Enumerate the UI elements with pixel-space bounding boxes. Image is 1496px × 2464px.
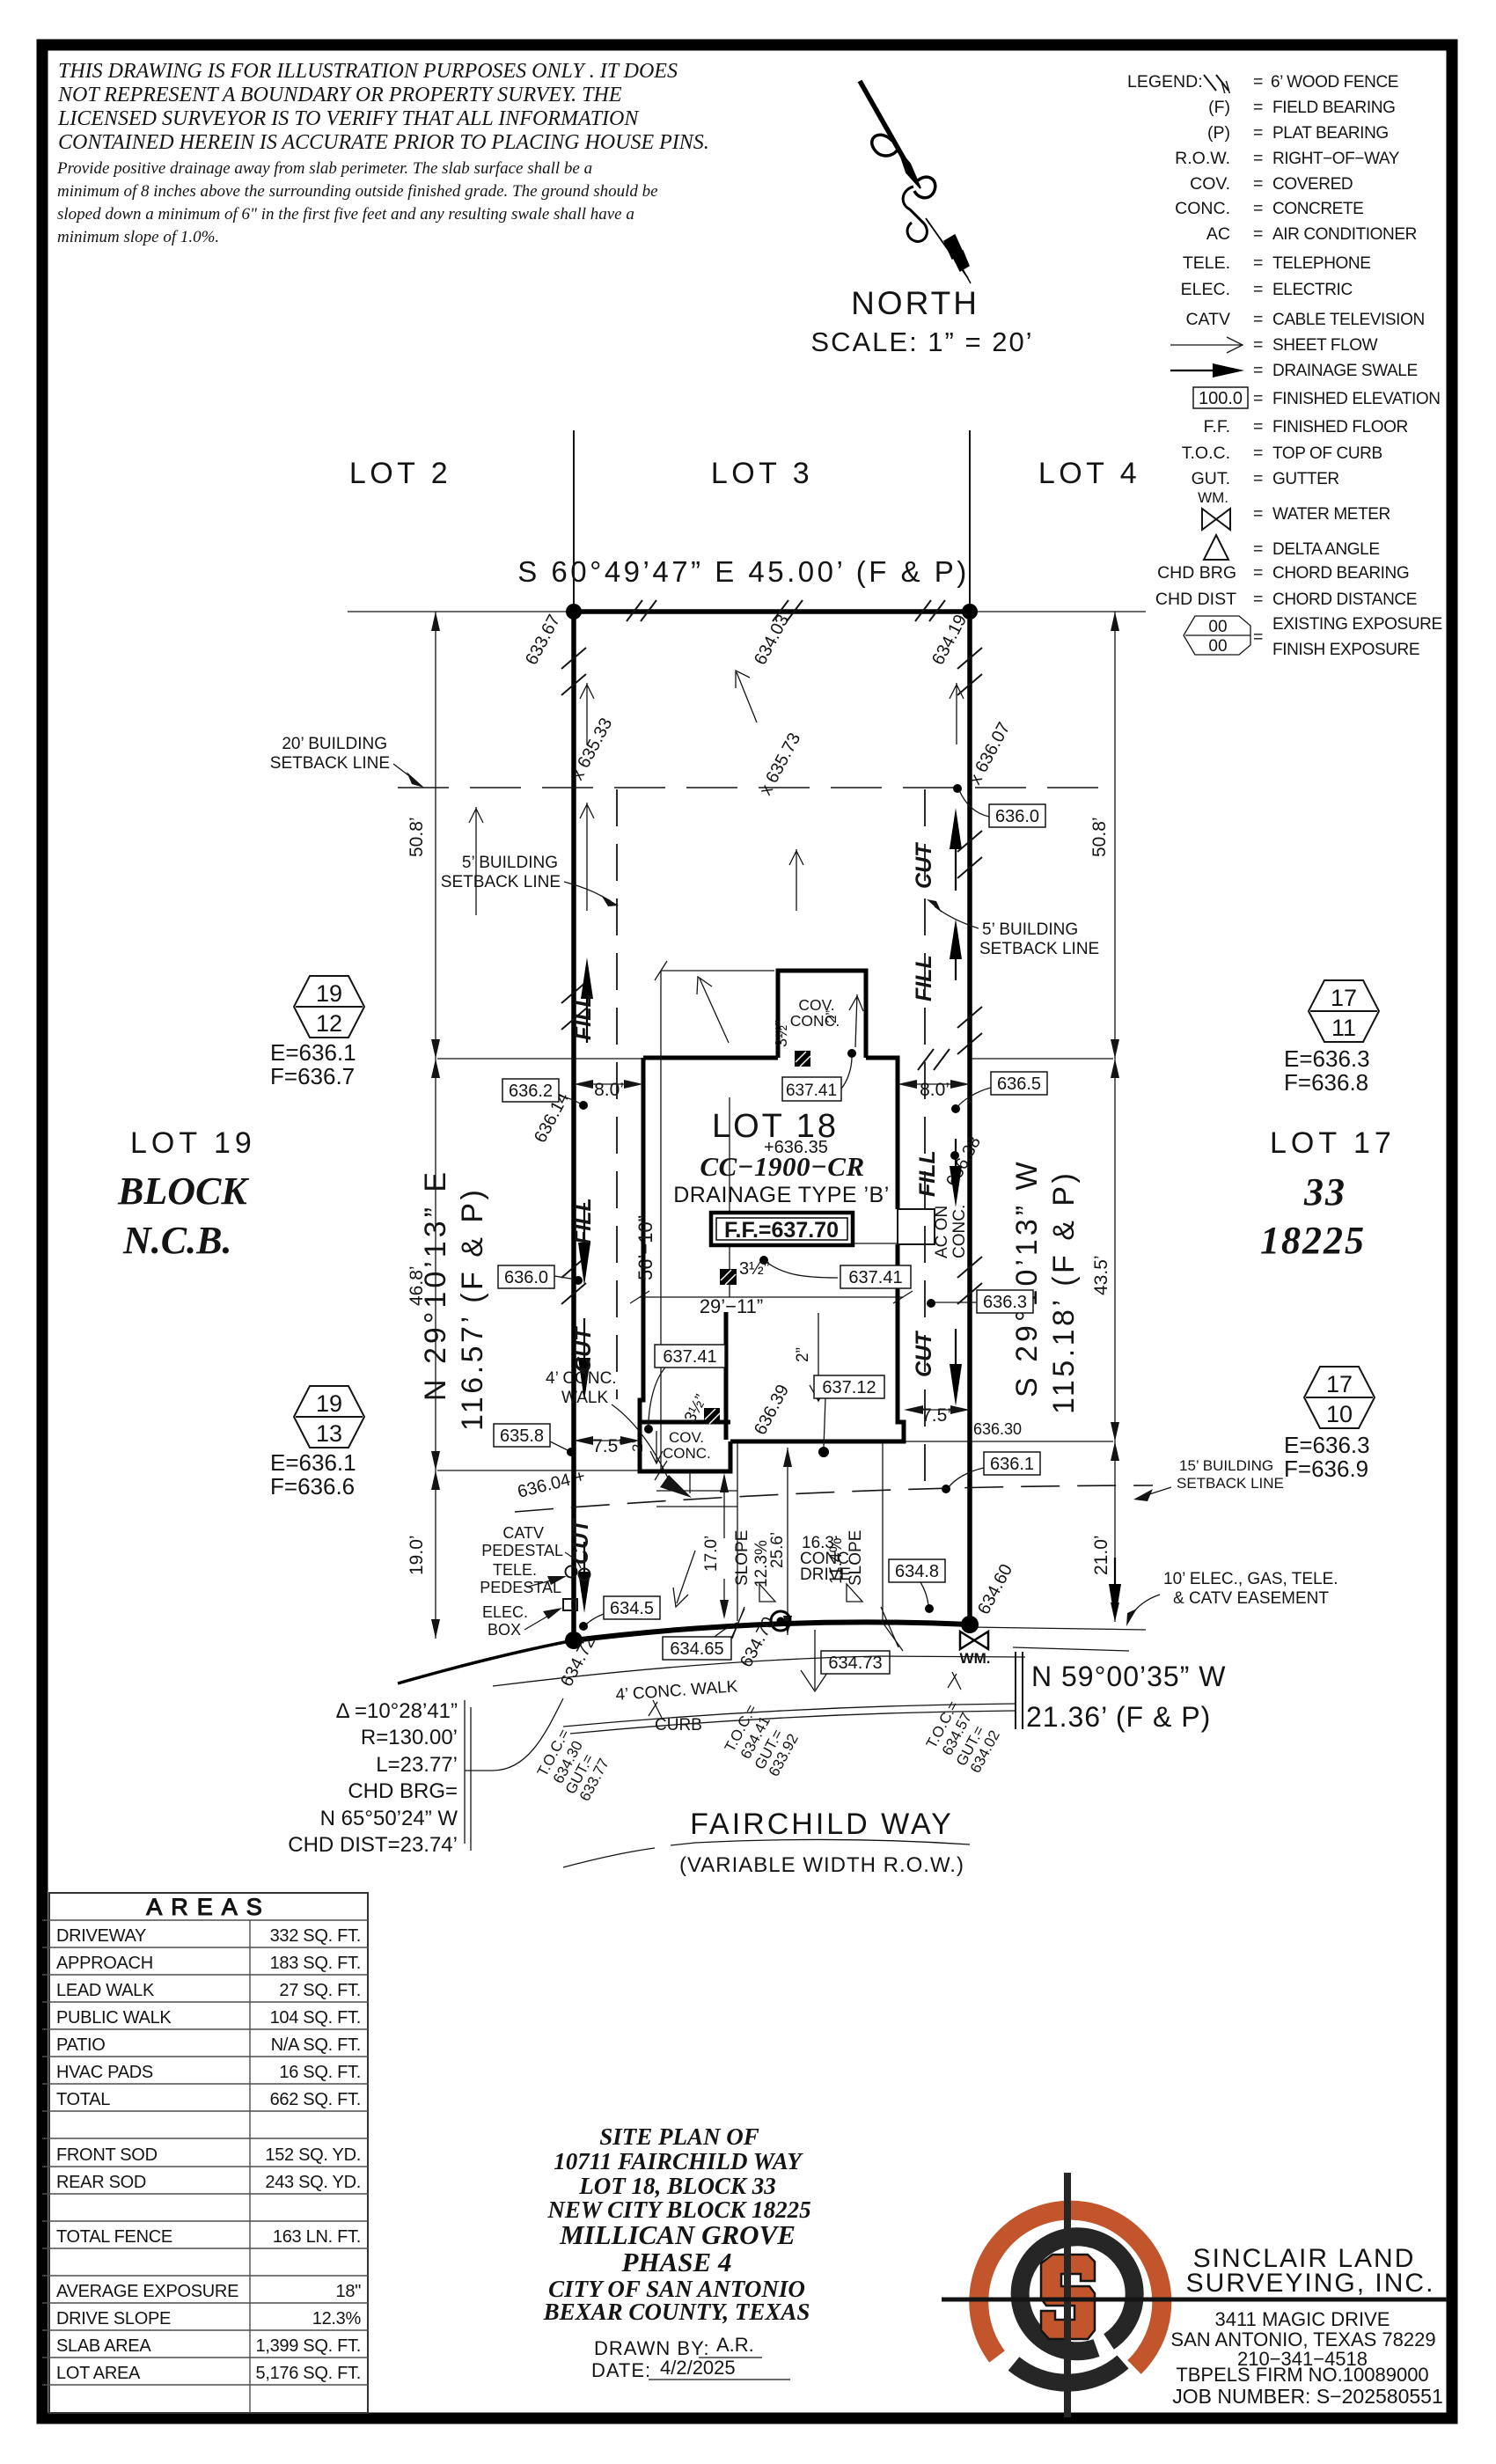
- svg-text:FRONT SOD: FRONT SOD: [56, 2145, 158, 2165]
- svg-text:637.41: 637.41: [848, 1268, 902, 1287]
- svg-text:56’−10”: 56’−10”: [634, 1215, 656, 1280]
- svg-text:SHEET FLOW: SHEET FLOW: [1272, 336, 1378, 355]
- svg-text:N 59°00’35” W: N 59°00’35” W: [1031, 1661, 1226, 1692]
- svg-text:50.8’: 50.8’: [1089, 817, 1110, 857]
- svg-text:104 SQ. FT.: 104 SQ. FT.: [270, 2008, 361, 2028]
- svg-text:GUTTER: GUTTER: [1272, 470, 1339, 488]
- svg-text:CATV: CATV: [502, 1524, 544, 1542]
- svg-text:FINISHED ELEVATION: FINISHED ELEVATION: [1272, 390, 1441, 408]
- svg-text:CHORD BEARING: CHORD BEARING: [1272, 564, 1409, 583]
- svg-text:10711 FAIRCHILD WAY: 10711 FAIRCHILD WAY: [554, 2148, 803, 2174]
- svg-text:SETBACK LINE: SETBACK LINE: [441, 873, 561, 891]
- svg-text:FILL: FILL: [571, 994, 596, 1040]
- svg-text:AIR CONDITIONER: AIR CONDITIONER: [1272, 225, 1417, 244]
- svg-text:AREAS: AREAS: [146, 1894, 271, 1920]
- svg-text:637.41: 637.41: [786, 1082, 837, 1100]
- svg-text:PATIO: PATIO: [56, 2035, 106, 2055]
- svg-text:635.8: 635.8: [500, 1426, 544, 1446]
- svg-text:4’ CONC.: 4’ CONC.: [546, 1369, 617, 1388]
- svg-text:R=130.00’: R=130.00’: [361, 1726, 458, 1749]
- svg-text:E=636.3: E=636.3: [1284, 1045, 1370, 1072]
- svg-text:637.41: 637.41: [663, 1347, 716, 1367]
- svg-text:AVERAGE EXPOSURE: AVERAGE EXPOSURE: [56, 2282, 238, 2301]
- svg-text:FINISHED FLOOR: FINISHED FLOOR: [1272, 418, 1408, 436]
- svg-text:L=23.77’: L=23.77’: [376, 1753, 458, 1777]
- svg-text:DELTA ANGLE: DELTA ANGLE: [1272, 540, 1380, 559]
- svg-text:(VARIABLE WIDTH R.O.W.): (VARIABLE WIDTH R.O.W.): [679, 1853, 964, 1877]
- svg-text:=: =: [1253, 280, 1263, 299]
- svg-text:=: =: [1253, 469, 1263, 488]
- svg-text:636.2: 636.2: [509, 1082, 553, 1101]
- svg-text:243 SQ. YD.: 243 SQ. YD.: [265, 2173, 361, 2192]
- svg-text:REAR SOD: REAR SOD: [56, 2173, 146, 2192]
- svg-text:PLAT BEARING: PLAT BEARING: [1272, 124, 1389, 143]
- svg-text:(F): (F): [1208, 98, 1230, 117]
- svg-text:636.3: 636.3: [983, 1293, 1027, 1312]
- svg-text:SITE PLAN OF: SITE PLAN OF: [599, 2123, 759, 2150]
- svg-text:=: =: [1253, 590, 1263, 609]
- svg-text:E=636.1: E=636.1: [270, 1039, 356, 1066]
- svg-text:R.O.W.: R.O.W.: [1175, 149, 1230, 168]
- svg-text:=: =: [1253, 199, 1263, 218]
- svg-text:N/A SQ. FT.: N/A SQ. FT.: [271, 2035, 361, 2055]
- svg-text:=: =: [1253, 504, 1263, 524]
- svg-text:SURVEYING, INC.: SURVEYING, INC.: [1186, 2269, 1435, 2298]
- svg-text:=: =: [1253, 361, 1263, 380]
- svg-text:21.0’: 21.0’: [1091, 1535, 1111, 1575]
- svg-text:CABLE TELEVISION: CABLE TELEVISION: [1272, 311, 1425, 329]
- svg-text:LEAD WALK: LEAD WALK: [56, 1981, 155, 2000]
- svg-text:LEGEND:: LEGEND:: [1127, 72, 1203, 92]
- svg-text:634.8: 634.8: [895, 1562, 939, 1581]
- svg-text:DATE:: DATE:: [591, 2359, 651, 2381]
- svg-text:SETBACK LINE: SETBACK LINE: [270, 754, 390, 773]
- svg-text:minimum slope of 1.0%.: minimum slope of 1.0%.: [57, 228, 219, 246]
- svg-text:TBPELS FIRM NO.10089000: TBPELS FIRM NO.10089000: [1176, 2364, 1428, 2386]
- svg-text:& CATV EASEMENT: & CATV EASEMENT: [1173, 1589, 1329, 1608]
- svg-text:12: 12: [316, 1010, 342, 1037]
- svg-text:=: =: [1253, 224, 1263, 244]
- svg-text:634.5: 634.5: [610, 1599, 654, 1618]
- svg-text:11: 11: [1331, 1015, 1356, 1041]
- svg-text:18225: 18225: [1260, 1219, 1366, 1262]
- svg-text:7.5’: 7.5’: [921, 1405, 951, 1426]
- svg-text:636.5: 636.5: [997, 1074, 1041, 1094]
- svg-text:sloped down a minimum of 6" in: sloped down a minimum of 6" in the first…: [57, 205, 634, 224]
- svg-text:6’ WOOD FENCE: 6’ WOOD FENCE: [1271, 73, 1398, 92]
- svg-text:LOT 2: LOT 2: [349, 457, 451, 490]
- svg-text:=: =: [1253, 253, 1263, 273]
- svg-text:163 LN. FT.: 163 LN. FT.: [273, 2227, 361, 2247]
- svg-text:A.R.: A.R.: [716, 2334, 754, 2356]
- svg-text:2”: 2”: [823, 1010, 840, 1023]
- svg-text:MILLICAN GROVE: MILLICAN GROVE: [559, 2219, 796, 2250]
- svg-text:SLOPE: SLOPE: [733, 1530, 752, 1586]
- svg-text:PEDESTAL: PEDESTAL: [481, 1542, 563, 1559]
- svg-text:100.0: 100.0: [1199, 389, 1243, 408]
- svg-text:FILL: FILL: [915, 1150, 940, 1197]
- svg-text:18": 18": [336, 2282, 362, 2301]
- svg-text:CUT: CUT: [571, 1325, 596, 1373]
- svg-text:CONC.: CONC.: [1175, 199, 1230, 218]
- svg-text:DRAINAGE SWALE: DRAINAGE SWALE: [1272, 362, 1418, 380]
- svg-text:17: 17: [1331, 985, 1357, 1011]
- svg-text:minimum of 8 inches above the: minimum of 8 inches above the surroundin…: [57, 182, 658, 201]
- svg-text:=: =: [1253, 563, 1263, 583]
- svg-text:=: =: [1253, 627, 1263, 647]
- svg-text:PUBLIC WALK: PUBLIC WALK: [56, 2008, 172, 2028]
- svg-text:WATER METER: WATER METER: [1272, 505, 1390, 524]
- svg-text:T.O.C.: T.O.C.: [1182, 444, 1230, 463]
- svg-text:CATV: CATV: [1185, 310, 1230, 329]
- svg-text:TELEPHONE: TELEPHONE: [1272, 254, 1371, 273]
- svg-text:7.5’: 7.5’: [592, 1436, 622, 1456]
- svg-text:21.36’ (F & P): 21.36’ (F & P): [1026, 1701, 1211, 1733]
- svg-text:CURB: CURB: [655, 1716, 702, 1734]
- svg-text:CONTAINED HEREIN IS ACCURATE P: CONTAINED HEREIN IS ACCURATE PRIOR TO PL…: [58, 131, 709, 154]
- svg-text:CHD DIST: CHD DIST: [1155, 590, 1236, 609]
- svg-text:F.F.=637.70: F.F.=637.70: [724, 1218, 839, 1243]
- svg-text:LOT 4: LOT 4: [1038, 457, 1140, 490]
- svg-text:LOT 19: LOT 19: [130, 1126, 256, 1160]
- svg-text:TOP OF CURB: TOP OF CURB: [1272, 444, 1382, 463]
- svg-text:=: =: [1253, 444, 1263, 463]
- svg-text:F.F.: F.F.: [1204, 417, 1230, 436]
- svg-text:5,176 SQ. FT.: 5,176 SQ. FT.: [256, 2364, 362, 2383]
- svg-text:DRAINAGE TYPE ’B’: DRAINAGE TYPE ’B’: [673, 1183, 890, 1207]
- svg-text:=: =: [1253, 174, 1263, 194]
- svg-text:LOT 17: LOT 17: [1270, 1126, 1396, 1160]
- svg-text:SLOPE: SLOPE: [847, 1530, 865, 1586]
- svg-text:CHD DIST=23.74’: CHD DIST=23.74’: [288, 1833, 458, 1857]
- svg-text:LOT 18, BLOCK 33: LOT 18, BLOCK 33: [578, 2173, 776, 2199]
- svg-text:13: 13: [316, 1420, 342, 1447]
- svg-text:=: =: [1253, 149, 1263, 168]
- svg-text:183 SQ. FT.: 183 SQ. FT.: [270, 1954, 361, 1973]
- svg-text:RIGHT−OF−WAY: RIGHT−OF−WAY: [1272, 150, 1400, 168]
- svg-text:WALK: WALK: [561, 1389, 608, 1407]
- svg-text:=: =: [1253, 539, 1263, 559]
- svg-text:25.6’: 25.6’: [768, 1532, 787, 1568]
- svg-text:BEXAR COUNTY, TEXAS: BEXAR COUNTY, TEXAS: [543, 2299, 810, 2325]
- svg-text:10’ ELEC., GAS, TELE.: 10’ ELEC., GAS, TELE.: [1163, 1570, 1338, 1588]
- svg-text:3½”: 3½”: [773, 1020, 790, 1047]
- svg-text:LOT 3: LOT 3: [711, 457, 813, 490]
- svg-text:TOTAL FENCE: TOTAL FENCE: [56, 2227, 172, 2247]
- svg-text:116.57’ (F & P): 116.57’ (F & P): [456, 1187, 489, 1431]
- svg-text:CC−1900−CR: CC−1900−CR: [700, 1151, 864, 1182]
- svg-text:=: =: [1253, 417, 1263, 436]
- svg-text:Provide positive drainage away: Provide positive drainage away from slab…: [56, 159, 592, 178]
- svg-text:17: 17: [1326, 1371, 1353, 1397]
- svg-text:SETBACK LINE: SETBACK LINE: [979, 940, 1099, 958]
- svg-text:43.5’: 43.5’: [1091, 1255, 1111, 1295]
- svg-text:COVERED: COVERED: [1272, 175, 1353, 194]
- svg-text:LOT AREA: LOT AREA: [56, 2364, 141, 2383]
- svg-text:662 SQ. FT.: 662 SQ. FT.: [270, 2090, 361, 2109]
- svg-text:FILL: FILL: [912, 955, 936, 1001]
- svg-text:=: =: [1253, 389, 1263, 408]
- svg-text:CONC.: CONC.: [950, 1205, 969, 1258]
- svg-text:50.8’: 50.8’: [407, 817, 427, 857]
- svg-text:F=636.7: F=636.7: [270, 1063, 355, 1089]
- svg-text:15’ BUILDING: 15’ BUILDING: [1179, 1457, 1273, 1474]
- svg-text:TELE.: TELE.: [1183, 253, 1230, 273]
- svg-text:DRIVEWAY: DRIVEWAY: [56, 1926, 146, 1946]
- svg-text:AC ON: AC ON: [933, 1206, 951, 1258]
- svg-text:=: =: [1253, 123, 1263, 143]
- svg-text:E=636.1: E=636.1: [270, 1449, 356, 1476]
- svg-text:1,399 SQ. FT.: 1,399 SQ. FT.: [256, 2336, 362, 2356]
- svg-text:3411 MAGIC DRIVE: 3411 MAGIC DRIVE: [1215, 2308, 1390, 2330]
- svg-text:CUT: CUT: [912, 1330, 936, 1377]
- svg-text:E=636.3: E=636.3: [1284, 1432, 1370, 1458]
- svg-text:115.18’ (F & P): 115.18’ (F & P): [1047, 1170, 1081, 1414]
- svg-text:CUT: CUT: [912, 841, 936, 889]
- svg-text:Δ =10°28’41”: Δ =10°28’41”: [336, 1699, 458, 1723]
- svg-text:CONCRETE: CONCRETE: [1272, 200, 1363, 218]
- svg-text:N.C.B.: N.C.B.: [122, 1219, 231, 1262]
- svg-text:29’−11”: 29’−11”: [700, 1295, 763, 1317]
- svg-text:DRIVE SLOPE: DRIVE SLOPE: [56, 2309, 171, 2328]
- svg-text:=: =: [1253, 335, 1263, 355]
- svg-text:FILL: FILL: [571, 1198, 596, 1244]
- svg-text:GUT.: GUT.: [1192, 469, 1230, 488]
- svg-text:8.0’: 8.0’: [920, 1080, 950, 1100]
- svg-text:COV.: COV.: [1190, 174, 1230, 194]
- svg-text:2”: 2”: [794, 1347, 812, 1362]
- svg-text:11.4%: 11.4%: [827, 1537, 846, 1584]
- svg-text:NOT REPRESENT A BOUNDARY OR PR: NOT REPRESENT A BOUNDARY OR PROPERTY SUR…: [57, 84, 622, 106]
- svg-text:637.12: 637.12: [822, 1378, 876, 1397]
- svg-text:N 65°50’24” W: N 65°50’24” W: [320, 1807, 458, 1830]
- svg-text:634.65: 634.65: [670, 1639, 723, 1659]
- svg-text:(P): (P): [1207, 123, 1230, 143]
- svg-text:19.0’: 19.0’: [407, 1535, 427, 1575]
- svg-text:THIS DRAWING IS FOR ILLUSTRATI: THIS DRAWING IS FOR ILLUSTRATION PURPOSE…: [58, 60, 678, 83]
- svg-text:COV.: COV.: [669, 1429, 704, 1446]
- svg-text:636.1: 636.1: [990, 1455, 1034, 1474]
- svg-text:00: 00: [1208, 637, 1227, 656]
- svg-text:NORTH: NORTH: [851, 285, 979, 321]
- svg-text:CHORD DISTANCE: CHORD DISTANCE: [1272, 590, 1417, 609]
- svg-text:CONC.: CONC.: [663, 1445, 711, 1462]
- svg-text:WM.: WM.: [960, 1650, 991, 1667]
- svg-text:BOX: BOX: [488, 1621, 521, 1639]
- svg-text:EXISTING EXPOSURE: EXISTING EXPOSURE: [1272, 615, 1442, 634]
- svg-text:ELECTRIC: ELECTRIC: [1272, 281, 1353, 299]
- svg-text:F=636.8: F=636.8: [1284, 1069, 1368, 1096]
- svg-text:APPROACH: APPROACH: [56, 1954, 153, 1973]
- svg-text:10: 10: [1326, 1401, 1353, 1427]
- svg-text:WM.: WM.: [1198, 489, 1228, 506]
- svg-text:19: 19: [316, 980, 342, 1007]
- svg-text:AC: AC: [1206, 224, 1230, 244]
- svg-text:5’ BUILDING: 5’ BUILDING: [982, 920, 1078, 939]
- svg-text:JOB NUMBER: S−202580551: JOB NUMBER: S−202580551: [1172, 2385, 1442, 2408]
- svg-text:33: 33: [1303, 1170, 1346, 1214]
- svg-text:17.0’: 17.0’: [702, 1536, 721, 1572]
- svg-text:=: =: [1253, 310, 1263, 329]
- svg-text:332 SQ. FT.: 332 SQ. FT.: [270, 1926, 361, 1946]
- svg-text:636.0: 636.0: [504, 1268, 548, 1287]
- svg-text:CHD BRG: CHD BRG: [1157, 563, 1236, 583]
- svg-text:LICENSED SURVEYOR IS TO VERIFY: LICENSED SURVEYOR IS TO VERIFY THAT ALL …: [57, 107, 640, 130]
- svg-text:S 29°10’13” W: S 29°10’13” W: [1010, 1158, 1044, 1397]
- svg-text:F=636.9: F=636.9: [1284, 1456, 1368, 1482]
- svg-text:PHASE 4: PHASE 4: [621, 2247, 732, 2277]
- svg-text:12.3%: 12.3%: [312, 2309, 362, 2328]
- svg-text:F=636.6: F=636.6: [270, 1473, 355, 1500]
- svg-text:SCALE: 1” = 20’: SCALE: 1” = 20’: [810, 326, 1033, 357]
- svg-text:=: =: [1253, 98, 1263, 117]
- svg-text:16 SQ. FT.: 16 SQ. FT.: [279, 2063, 361, 2082]
- svg-text:27 SQ. FT.: 27 SQ. FT.: [279, 1981, 361, 2000]
- svg-text:636.0: 636.0: [995, 807, 1039, 826]
- svg-text:HVAC PADS: HVAC PADS: [56, 2063, 153, 2082]
- svg-text:S 60°49’47” E 45.00’ (F &: S 60°49’47” E 45.00’ (F & P): [517, 555, 970, 588]
- svg-text:FINISH EXPOSURE: FINISH EXPOSURE: [1272, 641, 1419, 659]
- svg-text:FAIRCHILD WAY: FAIRCHILD WAY: [690, 1808, 954, 1841]
- svg-text:19: 19: [316, 1390, 342, 1417]
- svg-text:TELE.: TELE.: [493, 1561, 537, 1579]
- svg-text:SETBACK LINE: SETBACK LINE: [1177, 1475, 1284, 1492]
- svg-text:CHD BRG=: CHD BRG=: [348, 1779, 458, 1803]
- svg-text:TOTAL: TOTAL: [56, 2090, 110, 2109]
- svg-text:ELEC.: ELEC.: [1181, 280, 1230, 299]
- svg-text:=: =: [1253, 72, 1263, 92]
- svg-text:BLOCK: BLOCK: [117, 1170, 249, 1213]
- svg-text:SLAB AREA: SLAB AREA: [56, 2336, 151, 2356]
- svg-text:ELEC.: ELEC.: [482, 1603, 528, 1621]
- svg-text:00: 00: [1208, 618, 1227, 636]
- svg-text:8.0’: 8.0’: [594, 1080, 624, 1100]
- svg-text:4/2/2025: 4/2/2025: [660, 2357, 736, 2379]
- svg-text:20’ BUILDING: 20’ BUILDING: [282, 735, 387, 753]
- svg-text:N 29°10’13” E: N 29°10’13” E: [419, 1169, 452, 1401]
- svg-text:636.30: 636.30: [973, 1420, 1022, 1438]
- svg-text:152 SQ. YD.: 152 SQ. YD.: [265, 2145, 361, 2165]
- svg-text:FIELD BEARING: FIELD BEARING: [1272, 99, 1395, 117]
